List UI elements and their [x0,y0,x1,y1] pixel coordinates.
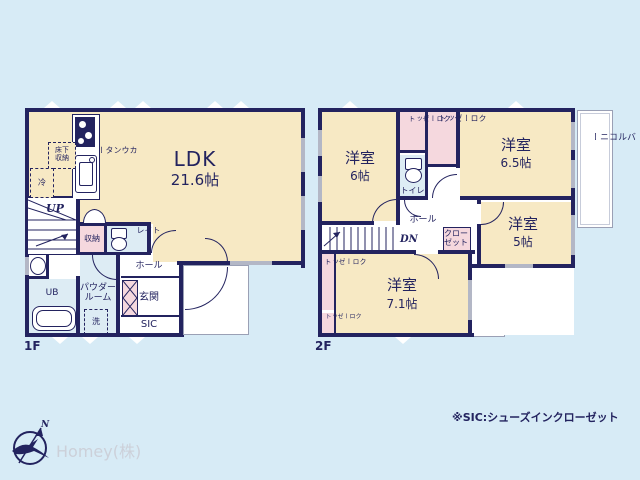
closet-left-label: クローゼット [324,258,366,265]
floor2-label: 2F [315,340,332,354]
powder-room-label: パウダー ルーム [78,283,118,304]
underfloor-storage: 床下 収納 [48,142,76,169]
storage-label: 収納 [80,234,104,243]
counter-label: カウンター [97,146,137,154]
wall-segment [76,198,80,254]
wall-segment [46,254,49,278]
kitchen-sink-icon [75,155,97,193]
window-segment [318,130,322,156]
window-vent-icon [508,101,524,108]
wall-segment [25,108,305,112]
bedroom-6-size: 6帖 [326,170,394,184]
wall-segment [104,226,107,252]
window-segment [571,122,575,150]
window-vent-icon [52,337,68,344]
entrance-step-line [121,276,179,278]
window-vent-icon [110,101,126,108]
bedroom-6-5-name: 洋室 [470,137,562,154]
wall-segment [334,254,336,334]
washbasin-icon [30,257,46,275]
compass-north-label: N [41,420,49,430]
bedroom-7-1-size: 7.1帖 [352,298,452,312]
window-segment [301,196,305,230]
window-vent-icon [135,101,151,108]
bedroom-5-size: 5帖 [482,236,564,250]
ldk-name: LDK [150,148,240,171]
bedroom-6-name: 洋室 [326,150,394,167]
window-segment [571,215,575,255]
stairs-up-label: UP [46,203,64,216]
window-segment [25,257,29,275]
wall-segment [318,108,575,112]
window-vent-icon [233,101,249,108]
wall-segment [428,164,459,167]
window-vent-icon [44,101,60,108]
wall-segment [400,150,425,153]
stairs-down-label: DN [400,234,418,246]
balcony-right-label: バルコニー [589,132,634,141]
closet-bottom-left-label: クローゼット [324,313,360,319]
bathtub-icon [32,306,76,331]
window-vent-icon [207,101,223,108]
window-segment [505,264,533,268]
sic-note: ※SIC:シューズインクローゼット [452,412,619,425]
balcony-right [577,110,613,228]
toilet-bowl-icon [111,237,127,251]
window-segment [571,160,575,188]
ldk-size: 21.6帖 [150,172,240,189]
floorplan-canvas: カウンター 床下 収納 冷 UP 収納 トイレ UB パウダー ルーム 洗 [0,0,640,480]
bedroom-7-1-name: 洋室 [352,277,452,294]
toilet-bowl-icon [405,168,422,183]
window-vent-icon [129,337,145,344]
bedroom-5-name: 洋室 [482,216,564,233]
floor1-label: 1F [24,340,41,354]
closet-top-2-label: クローゼット [438,114,486,122]
sic-label: SIC [120,319,178,331]
toilet-label-2f: トイレ [398,186,427,195]
window-vent-icon [82,337,98,344]
toilet-label-1f: トイレ [136,226,160,234]
door-opening [416,250,438,254]
hall-label-1f: ホール [120,261,178,271]
hall-label-2f: ホール [405,215,441,225]
stove-icon [75,117,95,147]
window-segment [318,176,322,202]
window-segment [301,138,305,172]
window-segment [468,280,472,320]
stairs-down [322,227,398,250]
wall-segment [318,250,475,254]
window-vent-icon [395,337,411,344]
window-vent-icon [342,101,358,108]
bedroom-6-5-size: 6.5帖 [470,157,562,171]
compass: N [10,420,54,470]
wall-segment [301,108,305,268]
stairs-treads-icon [322,227,398,250]
laundry-space: 洗 [84,309,108,335]
ub-label: UB [28,288,76,298]
closet-hall-label: クロー ゼット [443,229,469,247]
company-logo-text: Homey(株) [56,443,141,461]
fridge-space: 冷 [30,168,54,198]
shoe-cabinet-icon [122,280,138,316]
